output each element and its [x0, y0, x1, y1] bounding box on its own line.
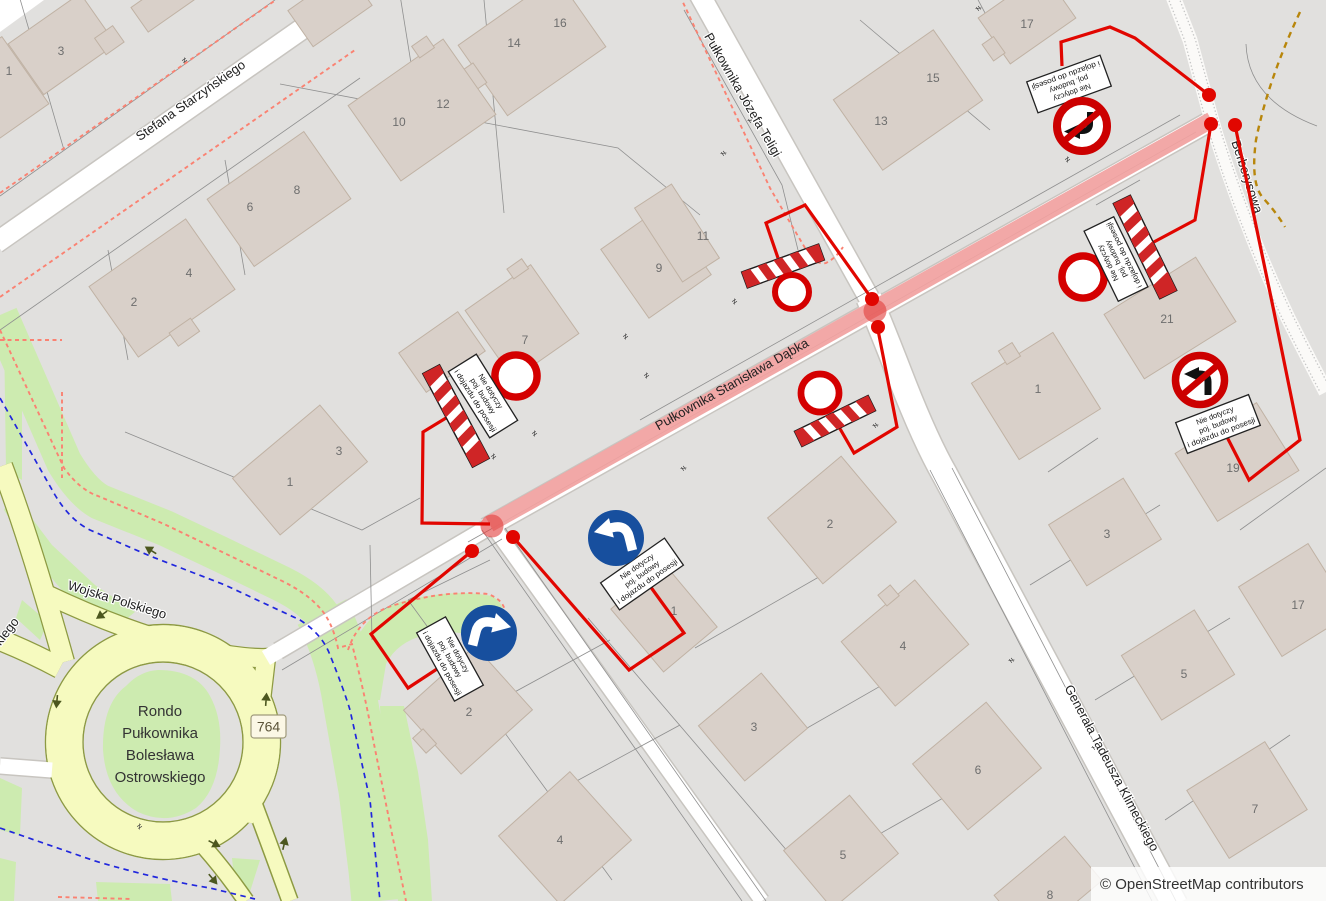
svg-text:Pułkownika: Pułkownika — [122, 725, 199, 742]
svg-text:2: 2 — [827, 517, 834, 531]
svg-text:16: 16 — [553, 16, 567, 30]
svg-text:3: 3 — [751, 720, 758, 734]
svg-text:8: 8 — [1047, 888, 1054, 901]
svg-text:764: 764 — [257, 719, 281, 735]
svg-text:4: 4 — [186, 266, 193, 280]
svg-text:2: 2 — [131, 295, 138, 309]
svg-text:4: 4 — [900, 639, 907, 653]
svg-text:5: 5 — [840, 848, 847, 862]
svg-text:Rondo: Rondo — [138, 703, 182, 720]
svg-text:1: 1 — [287, 475, 294, 489]
svg-text:11: 11 — [697, 229, 710, 243]
svg-text:4: 4 — [557, 833, 564, 847]
svg-text:17: 17 — [1291, 598, 1305, 612]
svg-text:7: 7 — [1252, 802, 1259, 816]
svg-text:10: 10 — [392, 115, 406, 129]
svg-text:© OpenStreetMap contributors: © OpenStreetMap contributors — [1100, 876, 1304, 893]
svg-text:21: 21 — [1160, 312, 1174, 326]
svg-text:12: 12 — [436, 97, 450, 111]
svg-text:6: 6 — [247, 200, 254, 214]
svg-text:5: 5 — [1181, 667, 1188, 681]
svg-text:3: 3 — [58, 44, 65, 58]
svg-text:6: 6 — [975, 763, 982, 777]
svg-text:13: 13 — [874, 114, 888, 128]
svg-text:17: 17 — [1020, 17, 1034, 31]
svg-text:14: 14 — [507, 36, 521, 50]
svg-text:8: 8 — [294, 183, 301, 197]
svg-text:9: 9 — [656, 261, 663, 275]
svg-text:1: 1 — [6, 64, 13, 78]
svg-text:Ostrowskiego: Ostrowskiego — [115, 769, 206, 786]
svg-text:3: 3 — [1104, 527, 1111, 541]
svg-text:15: 15 — [926, 71, 940, 85]
svg-text:7: 7 — [522, 333, 529, 347]
svg-text:1: 1 — [1035, 382, 1042, 396]
svg-text:3: 3 — [336, 444, 343, 458]
svg-text:Bolesława: Bolesława — [126, 747, 195, 764]
svg-text:19: 19 — [1226, 461, 1240, 475]
svg-text:2: 2 — [466, 705, 473, 719]
